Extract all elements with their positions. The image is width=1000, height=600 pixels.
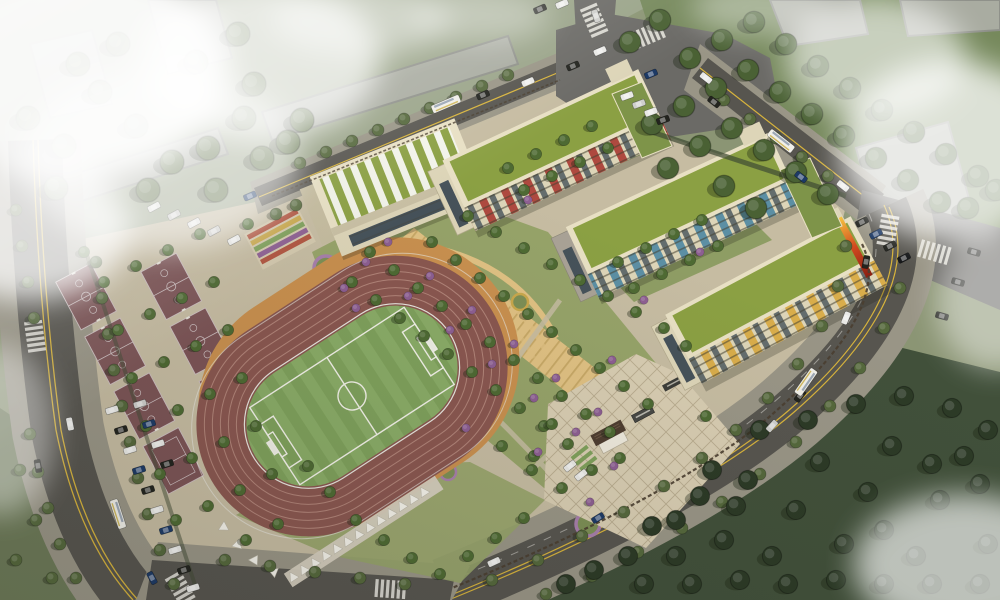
- campus-scene: [0, 0, 1000, 600]
- aerial-rendering-canvas: [0, 0, 1000, 600]
